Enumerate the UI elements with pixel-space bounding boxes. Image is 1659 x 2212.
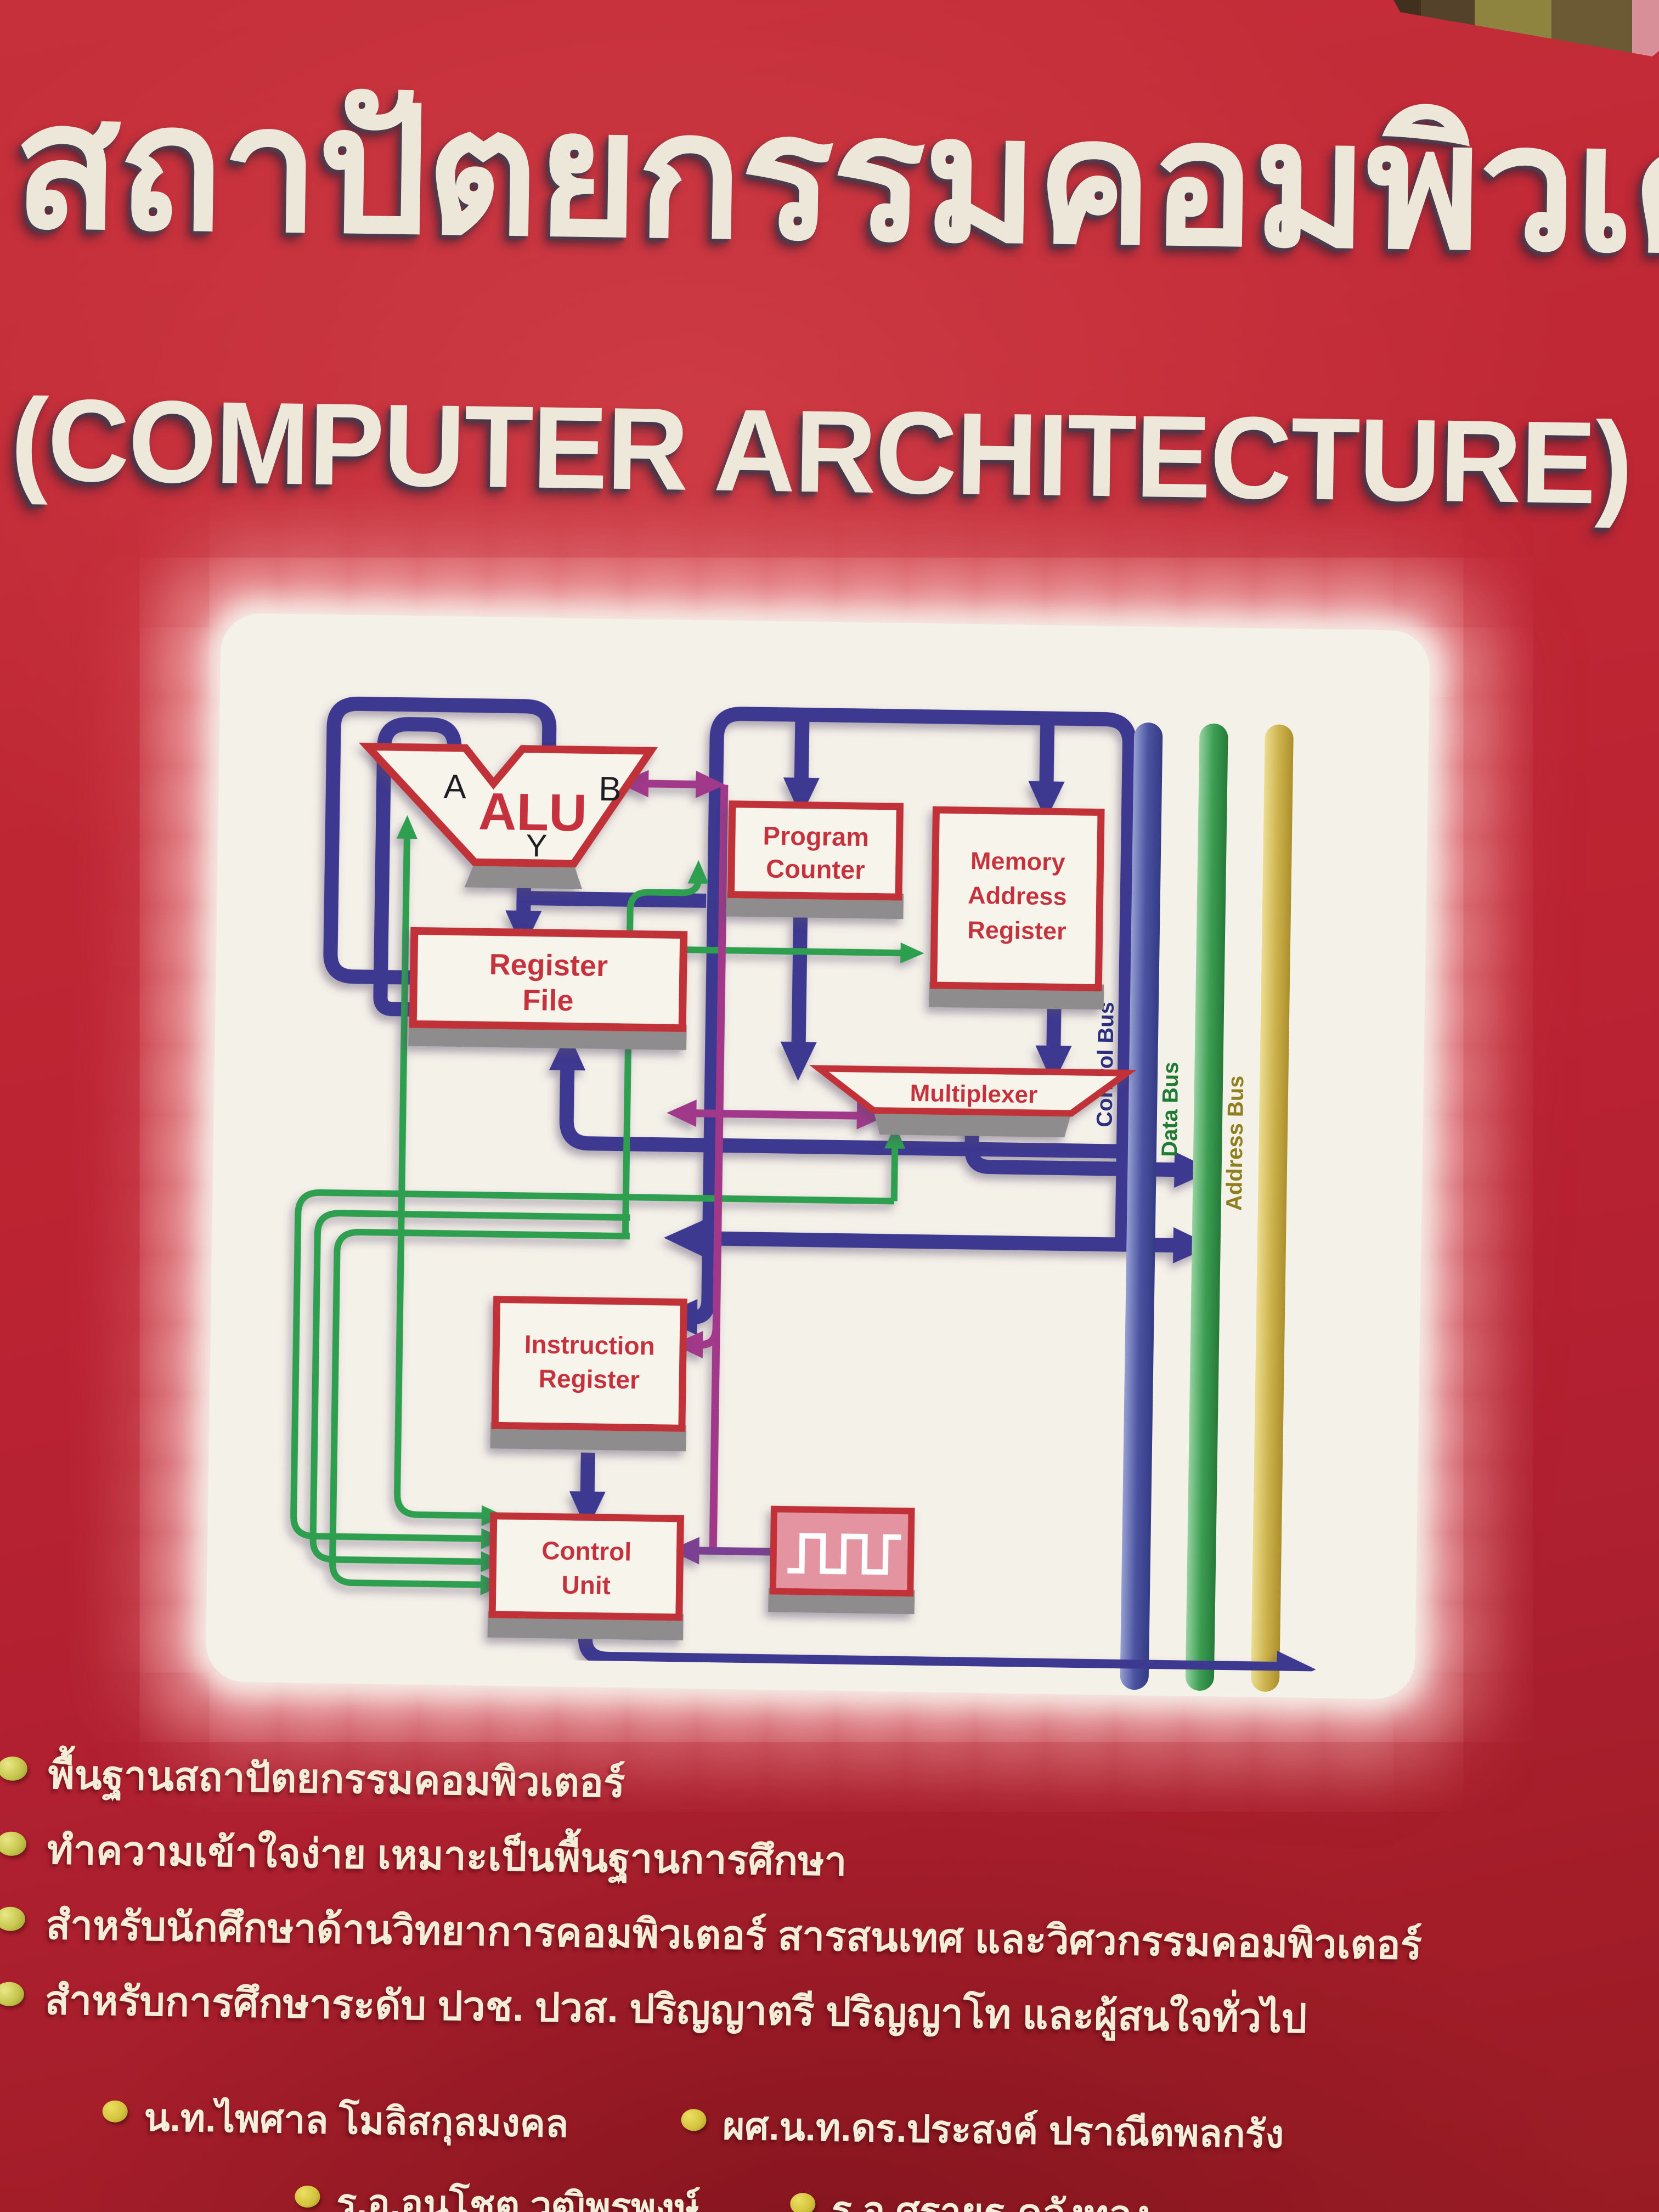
arrow-mar-to-multiplexer <box>1053 1009 1054 1053</box>
cpu-architecture-diagram: Control Bus Data Bus Address Bus A <box>205 613 1430 1699</box>
book-cover-photo: สถาปัตยกรรมคอมพิวเตอร์ (COMPUTER ARCHITE… <box>0 0 1659 2212</box>
cu-label-line2: Unit <box>561 1571 611 1600</box>
regfile-label-line2: File <box>522 984 574 1017</box>
mar-label-line3: Register <box>967 916 1066 945</box>
mux-label: Multiplexer <box>910 1080 1037 1108</box>
author-item: ร.อ.ศรายุธ คลังทอง <box>789 2180 1150 2212</box>
ir-label-line2: Register <box>538 1364 640 1395</box>
arrow-into-memory-address-register <box>1046 718 1047 788</box>
author-item: ร.อ.อนุโชต วุฒิพรพงษ์ <box>294 2172 699 2212</box>
green-mux-select <box>894 1145 895 1201</box>
address-bus-bar <box>1251 724 1294 1692</box>
magenta-alu-pc-double-arrow <box>643 783 701 785</box>
bullet-icon <box>295 2186 320 2208</box>
author-name: ร.อ.ศรายุธ คลังทอง <box>831 2180 1150 2212</box>
authors-row-1: น.ท.ไพศาล โมลิสกุลมงคล ผศ.น.ท.ดร.ประสงค์… <box>0 2085 1629 2170</box>
pc-label-line2: Counter <box>766 854 865 885</box>
multiplexer-block: Multiplexer <box>818 1069 1127 1138</box>
memory-address-register-block: Memory Address Register <box>929 810 1107 1009</box>
mar-label-line2: Address <box>968 881 1067 911</box>
alu-port-b-label: B <box>599 770 622 809</box>
bullet-icon <box>681 2109 707 2131</box>
bullet-icon <box>0 1756 27 1781</box>
magenta-regfile-mux-double-arrow <box>691 1113 862 1116</box>
arrow-cu-to-external <box>585 1638 1284 1669</box>
feature-text: ทำความเข้าใจง่าย เหมาะเป็นพื้นฐานการศึกษ… <box>47 1818 847 1894</box>
arrow-into-program-counter <box>802 715 803 785</box>
address-bus-label: Address Bus <box>1222 1075 1249 1211</box>
authors-row-2: ร.อ.อนุโชต วุฒิพรพงษ์ ร.อ.ศรายุธ คลังทอง <box>0 2168 1628 2212</box>
alu-port-a-label: A <box>443 768 467 806</box>
bullet-icon <box>102 2100 128 2123</box>
author-name: ผศ.น.ท.ดร.ประสงค์ ปราณีตพลกรัง <box>722 2096 1284 2164</box>
magenta-to-instruction-register <box>697 1327 716 1345</box>
register-file-block: Register File <box>408 931 688 1050</box>
regfile-label-line1: Register <box>489 948 608 983</box>
book-subtitle-english: (COMPUTER ARCHITECTURE) <box>10 373 1603 531</box>
ir-box <box>495 1300 684 1429</box>
bullet-icon <box>0 1982 24 2006</box>
bullet-icon <box>790 2193 816 2212</box>
control-bus-label: Control Bus <box>1092 1002 1118 1127</box>
control-unit-block: Control Unit <box>488 1516 685 1640</box>
bullet-icon <box>0 1831 26 1856</box>
book-title-thai: สถาปัตยกรรมคอมพิวเตอร์ <box>12 39 1651 317</box>
feature-text: พื้นฐานสถาปัตยกรรมคอมพิวเตอร์ <box>48 1743 625 1815</box>
alu-port-y-label: Y <box>526 828 548 864</box>
internal-bus-double-arrow <box>696 1238 1181 1245</box>
arrow-pc-to-multiplexer <box>798 917 800 1049</box>
arrow-to-instruction-register <box>690 901 714 1318</box>
square-wave-icon <box>787 1536 901 1572</box>
author-item: ผศ.น.ท.ดร.ประสงค์ ปราณีตพลกรัง <box>680 2096 1284 2164</box>
clock-block <box>768 1509 916 1615</box>
author-item: น.ท.ไพศาล โมลิสกุลมงคล <box>102 2087 569 2154</box>
bullet-icon <box>0 1906 25 1931</box>
feature-list: พื้นฐานสถาปัตยกรรมคอมพิวเตอร์ ทำความเข้า… <box>0 1742 1622 2067</box>
arrow-ir-to-control-unit <box>588 1453 588 1499</box>
architecture-diagram-panel: Control Bus Data Bus Address Bus A <box>205 613 1430 1699</box>
alu-result-branch <box>517 898 707 901</box>
cover-content: สถาปัตยกรรมคอมพิวเตอร์ (COMPUTER ARCHITE… <box>0 0 1659 2212</box>
instruction-register-block: Instruction Register <box>490 1299 689 1451</box>
data-bus-label: Data Bus <box>1158 1062 1183 1157</box>
author-name: น.ท.ไพศาล โมลิสกุลมงคล <box>144 2087 569 2153</box>
book-cover: สถาปัตยกรรมคอมพิวเตอร์ (COMPUTER ARCHITE… <box>0 0 1659 2212</box>
mar-label-line1: Memory <box>970 847 1066 876</box>
author-name: ร.อ.อนุโชต วุฒิพรพงษ์ <box>336 2173 699 2212</box>
clock-to-control-unit <box>694 1550 774 1551</box>
cu-label-line1: Control <box>541 1536 632 1566</box>
ir-label-line1: Instruction <box>524 1330 655 1360</box>
pc-label-line1: Program <box>763 821 869 852</box>
cu-box <box>492 1516 680 1617</box>
program-counter-block: Program Counter <box>726 804 905 919</box>
